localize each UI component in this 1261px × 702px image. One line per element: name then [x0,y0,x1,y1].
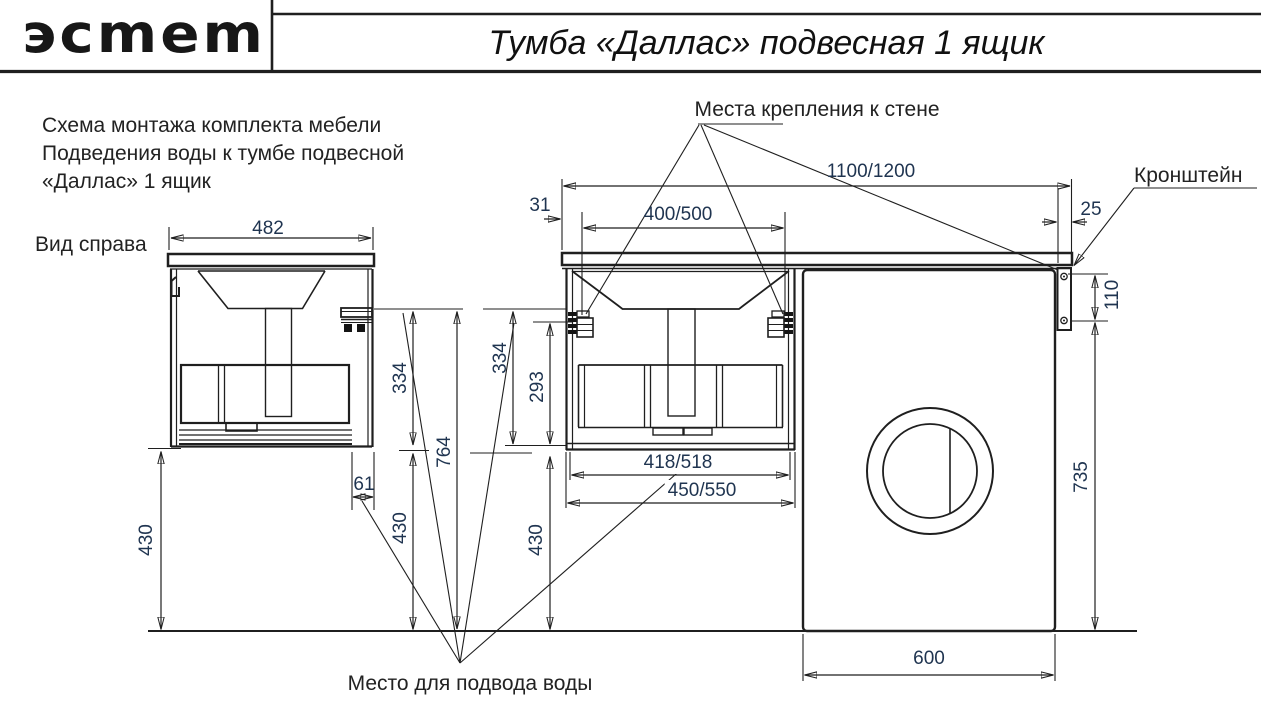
side-view-drawing [168,254,374,447]
mount-bracket-left [568,311,593,337]
sink-funnel-side [198,271,325,309]
mounting-note-line1: Схема монтажа комплекта мебели [42,112,404,140]
front-view-drawing [562,253,1072,450]
mounting-note-line2: Подведения воды к тумбе подвесной [42,140,404,168]
dim-cabinet-width: 450/550 [665,480,740,502]
dim-floor-gap-front: 430 [526,524,548,556]
brand-logo: эсmem [22,7,266,60]
mount-bracket-right [768,311,793,337]
dim-side-depth: 482 [252,218,284,240]
dim-bracket-height: 110 [1102,280,1124,310]
drawing-page: эсmem Тумба «Даллас» подвесная 1 ящик Сх… [0,0,1261,702]
dim-inner-width: 418/518 [641,452,716,474]
dim-floor-gap-side: 430 [136,524,158,556]
page-title: Тумба «Даллас» подвесная 1 ящик [272,26,1261,60]
wall-mounts-label: Места крепления к стене [694,98,939,122]
dim-countertop-length: 1100/1200 [827,161,915,183]
drawing-canvas [0,0,1261,702]
drawer-front [578,365,783,435]
dim-floor-gap-mid: 430 [390,512,412,544]
dim-water-supply-height: 764 [434,436,456,468]
drain-pipe-front [668,309,695,416]
sink-basin-front [572,271,789,309]
wall-hook [172,277,180,296]
washer-door-inner [883,424,977,518]
wall-bracket-drawing [1058,268,1072,330]
dim-drain-offset: 61 [353,474,374,496]
washing-machine-drawing [803,270,1055,631]
countertop [562,253,1072,265]
side-view-label: Вид справа [35,233,147,257]
dim-edge-to-mount: 31 [529,195,550,217]
drain-pipe-side [266,309,292,417]
dim-bracket-inset: 25 [1080,199,1101,221]
dim-cabinet-height-front: 334 [490,342,512,374]
dim-washer-height: 735 [1071,461,1093,493]
water-supply-label: Место для подвода воды [348,672,593,696]
leader-lines [362,124,1257,663]
dim-cabinet-height-side: 334 [390,362,412,394]
dim-drawer-opening-height: 293 [527,371,549,403]
mount-bracket-side [341,308,372,332]
washer-door-outer [867,408,993,534]
mounting-note-line3: «Даллас» 1 ящик [42,168,404,196]
dim-washer-width: 600 [913,648,945,670]
bracket-label: Кронштейн [1134,164,1242,188]
mounting-note: Схема монтажа комплекта мебели Подведени… [42,112,404,196]
dim-mount-spacing: 400/500 [644,204,713,226]
